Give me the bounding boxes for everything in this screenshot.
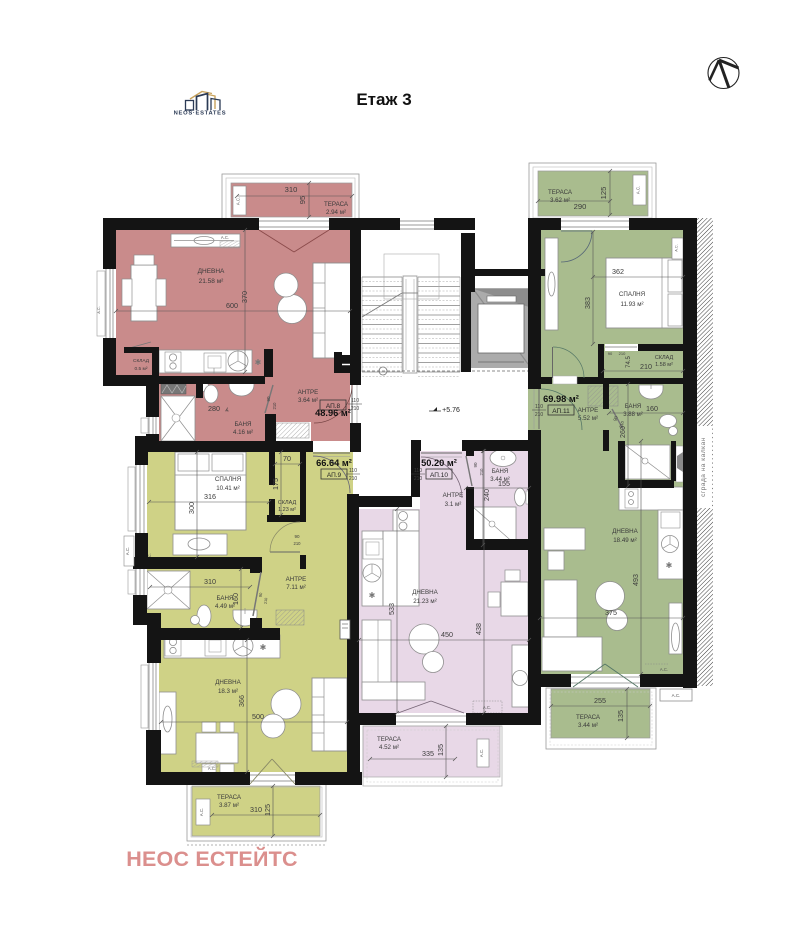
svg-text:90: 90	[266, 396, 271, 402]
svg-text:3.62 м²: 3.62 м²	[550, 197, 570, 204]
svg-text:Етаж 3: Етаж 3	[356, 90, 411, 109]
svg-text:366: 366	[237, 695, 246, 707]
svg-text:ТЕРАСА: ТЕРАСА	[377, 736, 402, 743]
svg-text:АНТРЕ: АНТРЕ	[298, 389, 319, 396]
svg-text:125: 125	[263, 804, 272, 816]
svg-text:✱: ✱	[666, 561, 673, 570]
svg-text:69.98 м²: 69.98 м²	[543, 394, 579, 404]
svg-text:375: 375	[605, 608, 617, 617]
svg-text:2.94 м²: 2.94 м²	[326, 209, 346, 216]
svg-text:90: 90	[608, 351, 613, 356]
svg-text:155: 155	[498, 479, 510, 488]
svg-text:160: 160	[646, 404, 658, 413]
svg-text:160: 160	[231, 593, 240, 605]
svg-text:0.5 м²: 0.5 м²	[135, 366, 148, 372]
svg-text:сграда на калкан: сграда на калкан	[700, 437, 707, 497]
svg-text:A.C.: A.C.	[97, 306, 101, 313]
svg-text:ТЕРАСА: ТЕРАСА	[217, 794, 242, 801]
svg-text:255: 255	[594, 696, 606, 705]
svg-text:50.20 м²: 50.20 м²	[421, 458, 457, 468]
svg-text:362: 362	[612, 267, 624, 276]
svg-text:383: 383	[583, 297, 592, 309]
svg-text:БАНЯ: БАНЯ	[625, 404, 641, 410]
svg-text:A.C.: A.C.	[125, 547, 130, 555]
svg-text:210: 210	[272, 402, 277, 410]
svg-text:74.5: 74.5	[626, 356, 632, 368]
svg-text:ТЕРАСА: ТЕРАСА	[324, 201, 349, 208]
svg-text:ТЕРАСА: ТЕРАСА	[548, 189, 573, 196]
svg-text:310: 310	[204, 577, 216, 586]
svg-text:135: 135	[616, 710, 625, 722]
svg-text:21.23 м²: 21.23 м²	[413, 598, 437, 605]
svg-text:A.C.: A.C.	[199, 808, 204, 816]
svg-text:1.58 м²: 1.58 м²	[655, 362, 673, 368]
svg-text:СКЛАД: СКЛАД	[278, 500, 297, 506]
svg-text:210: 210	[351, 406, 360, 412]
svg-text:A.C.: A.C.	[660, 667, 668, 672]
svg-text:NEOS·ESTATES: NEOS·ESTATES	[174, 111, 227, 117]
svg-text:310: 310	[285, 185, 298, 194]
svg-text:110: 110	[351, 398, 359, 404]
svg-text:210: 210	[535, 412, 544, 418]
svg-text:3.64 м²: 3.64 м²	[298, 397, 318, 404]
svg-text:450: 450	[441, 630, 453, 639]
svg-text:290: 290	[574, 202, 587, 211]
svg-text:95: 95	[298, 196, 307, 204]
svg-text:+5.76: +5.76	[442, 407, 460, 414]
svg-text:БАНЯ: БАНЯ	[492, 469, 508, 475]
svg-text:66.64 м²: 66.64 м²	[316, 458, 352, 468]
svg-text:335: 335	[422, 749, 434, 758]
svg-text:533: 533	[387, 603, 396, 615]
svg-text:A.C.: A.C.	[479, 749, 484, 757]
svg-text:240: 240	[482, 489, 491, 501]
svg-text:110: 110	[349, 468, 357, 474]
svg-text:260: 260	[618, 426, 627, 438]
svg-text:4.16 м²: 4.16 м²	[233, 429, 253, 436]
svg-text:3.87 м²: 3.87 м²	[219, 802, 239, 809]
svg-text:210: 210	[349, 476, 358, 482]
svg-text:ТЕРАСА: ТЕРАСА	[576, 714, 601, 721]
svg-text:135: 135	[436, 744, 445, 756]
svg-text:АП.10: АП.10	[430, 472, 448, 479]
svg-text:21.58 м²: 21.58 м²	[199, 278, 225, 285]
svg-text:210: 210	[264, 598, 269, 605]
svg-text:АП.11: АП.11	[552, 408, 570, 415]
svg-text:370: 370	[240, 291, 249, 303]
svg-text:СКЛАД: СКЛАД	[133, 358, 150, 364]
svg-text:НЕОС ЕСТЕЙТС: НЕОС ЕСТЕЙТС	[126, 846, 297, 871]
svg-text:300: 300	[187, 502, 196, 514]
svg-text:48.96 м²: 48.96 м²	[315, 408, 351, 418]
svg-text:110: 110	[414, 468, 422, 474]
svg-text:✱: ✱	[260, 643, 267, 652]
svg-text:СПАЛНЯ: СПАЛНЯ	[619, 291, 645, 298]
svg-text:ДНЕВНА: ДНЕВНА	[412, 589, 438, 596]
svg-text:18.49 м²: 18.49 м²	[613, 537, 637, 544]
svg-text:125: 125	[599, 187, 608, 200]
svg-text:18.3 м²: 18.3 м²	[218, 688, 238, 695]
svg-text:11.93 м²: 11.93 м²	[620, 301, 643, 308]
svg-text:438: 438	[474, 623, 483, 635]
svg-text:70: 70	[283, 454, 291, 463]
svg-text:3.1 м²: 3.1 м²	[445, 501, 462, 508]
svg-text:АНТРЕ: АНТРЕ	[578, 407, 599, 414]
svg-text:СКЛАД: СКЛАД	[655, 355, 674, 361]
svg-text:110: 110	[535, 404, 543, 410]
svg-text:A.C.: A.C.	[675, 244, 679, 251]
svg-text:ДНЕВНА: ДНЕВНА	[612, 528, 638, 535]
svg-text:280: 280	[208, 404, 220, 413]
svg-text:316: 316	[204, 492, 216, 501]
svg-text:A.C.: A.C.	[221, 235, 229, 240]
svg-text:✱: ✱	[255, 358, 262, 367]
svg-text:493: 493	[631, 574, 640, 586]
svg-text:310: 310	[250, 805, 262, 814]
svg-text:ДНЕВНА: ДНЕВНА	[215, 679, 241, 686]
svg-text:СПАЛНЯ: СПАЛНЯ	[215, 476, 241, 483]
svg-text:✱: ✱	[369, 591, 376, 600]
svg-text:10.41 м²: 10.41 м²	[216, 485, 240, 492]
svg-text:АП.9: АП.9	[327, 472, 342, 479]
svg-text:3.44 м²: 3.44 м²	[578, 722, 598, 729]
svg-text:∡: ∡	[225, 407, 229, 413]
svg-text:90: 90	[294, 534, 300, 539]
svg-text:A.C.: A.C.	[636, 186, 641, 194]
svg-text:ДНЕВНА: ДНЕВНА	[198, 268, 225, 275]
svg-text:АНТРЕ: АНТРЕ	[286, 576, 307, 583]
svg-text:210: 210	[640, 362, 652, 371]
svg-text:210: 210	[619, 351, 626, 356]
svg-text:500: 500	[252, 712, 264, 721]
svg-text:A.C.: A.C.	[672, 693, 681, 698]
svg-text:АНТРЕ: АНТРЕ	[443, 492, 464, 499]
svg-text:600: 600	[226, 301, 238, 310]
svg-text:90: 90	[473, 462, 478, 468]
svg-text:210: 210	[294, 541, 302, 546]
svg-text:175: 175	[271, 478, 280, 490]
svg-text:210: 210	[414, 476, 423, 482]
svg-text:A.C.: A.C.	[236, 197, 241, 205]
svg-text:7.11 м²: 7.11 м²	[286, 584, 306, 591]
svg-text:БАНЯ: БАНЯ	[235, 421, 252, 428]
svg-text:4.52 м²: 4.52 м²	[379, 744, 399, 751]
